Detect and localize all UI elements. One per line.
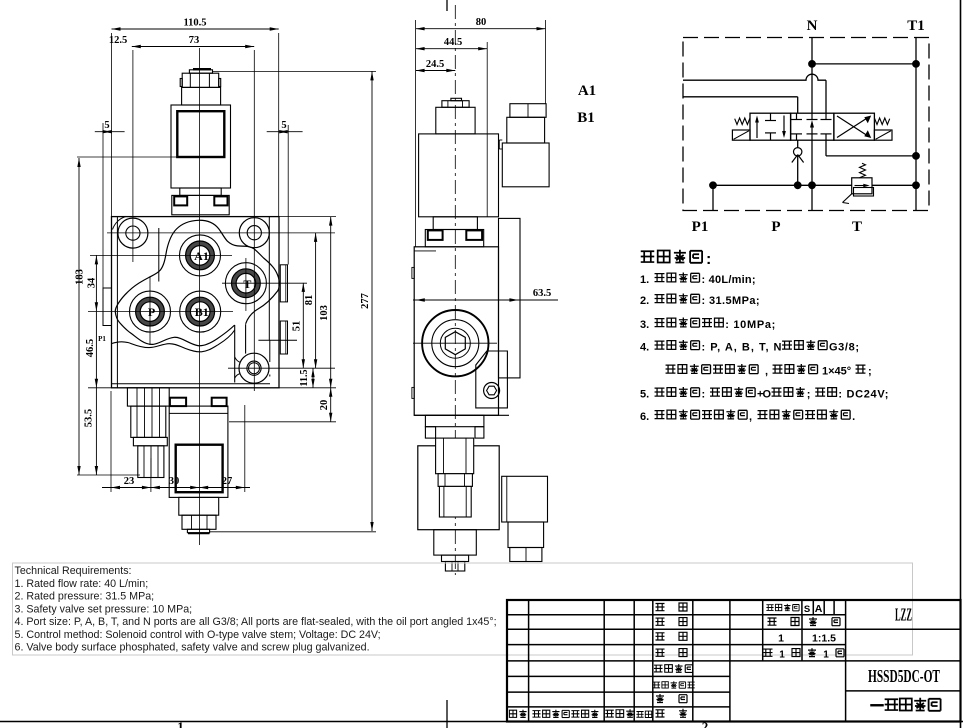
svg-text:N: N (807, 18, 818, 34)
svg-text:P: P (771, 219, 780, 235)
svg-text:5: 5 (104, 120, 109, 131)
svg-text:T: T (243, 277, 251, 291)
svg-text::: : (702, 389, 710, 401)
svg-text:110.5: 110.5 (183, 18, 206, 29)
svg-text:LZZ: LZZ (895, 605, 912, 625)
svg-text:63.5: 63.5 (533, 288, 551, 299)
svg-text:,: , (749, 411, 757, 423)
svg-text:B1: B1 (577, 110, 595, 126)
svg-text:P1: P1 (98, 335, 106, 343)
svg-text:12.5: 12.5 (109, 35, 127, 46)
svg-text:: P, A, B, T, N: : P, A, B, T, N (702, 342, 782, 354)
svg-text:277: 277 (360, 293, 371, 309)
svg-text:: 10MPa;: : 10MPa; (725, 319, 775, 331)
svg-text:30: 30 (169, 476, 180, 487)
svg-text:4. Port size: P, A, B, T, and: 4. Port size: P, A, B, T, and N ports ar… (15, 616, 497, 628)
svg-text:P1: P1 (692, 219, 709, 235)
svg-text:+O: +O (757, 389, 771, 401)
svg-text:Technical Requirements:: Technical Requirements: (15, 565, 132, 577)
svg-text:1: 1 (778, 632, 784, 644)
svg-text:24.5: 24.5 (426, 59, 444, 70)
svg-text:2. Rated pressure: 31.5 MPa;: 2. Rated pressure: 31.5 MPa; (15, 591, 155, 603)
svg-text:: 31.5MPa;: : 31.5MPa; (702, 295, 760, 307)
svg-text:T: T (852, 219, 862, 235)
svg-text::: : (706, 251, 711, 268)
svg-text:183: 183 (75, 269, 86, 285)
svg-text:T1: T1 (907, 18, 925, 34)
svg-text:53.5: 53.5 (84, 409, 95, 427)
svg-text:5. Control method: Solenoid co: 5. Control method: Solenoid control with… (15, 629, 381, 641)
svg-text:23: 23 (124, 476, 135, 487)
svg-text:103: 103 (319, 305, 330, 321)
svg-text:73: 73 (189, 35, 200, 46)
svg-text:1: 1 (177, 719, 184, 728)
svg-text:20: 20 (319, 400, 330, 411)
svg-text:2: 2 (702, 719, 709, 728)
svg-text:11.5: 11.5 (299, 370, 310, 387)
svg-text:P: P (148, 305, 155, 319)
svg-text:1×45°: 1×45° (822, 366, 851, 378)
svg-text:81: 81 (304, 295, 315, 306)
svg-text:34: 34 (87, 277, 98, 288)
svg-text:46.5: 46.5 (85, 339, 96, 357)
svg-text:6. Valve body surface phosphat: 6. Valve body surface phosphated, safety… (15, 642, 370, 654)
svg-text:1. Rated flow rate: 40 L/min;: 1. Rated flow rate: 40 L/min; (15, 578, 149, 590)
svg-text:5: 5 (281, 120, 286, 131)
svg-text:G3/8;: G3/8; (829, 342, 859, 354)
svg-text:44.5: 44.5 (444, 37, 462, 48)
svg-text:1:1.5: 1:1.5 (812, 632, 836, 644)
svg-text:;: ; (807, 389, 815, 401)
svg-text:A: A (815, 603, 823, 615)
svg-text:: 40L/min;: : 40L/min; (702, 274, 756, 286)
svg-text:: DC24V;: : DC24V; (838, 389, 888, 401)
svg-text:HSSD5DC-OT: HSSD5DC-OT (868, 666, 940, 686)
svg-text:80: 80 (476, 17, 487, 28)
svg-text:3.: 3. (640, 319, 649, 331)
svg-text:S: S (804, 604, 810, 615)
svg-text:A1: A1 (578, 83, 596, 99)
svg-text:;: ; (868, 366, 872, 378)
svg-text:4.: 4. (640, 342, 649, 354)
svg-text:.: . (852, 411, 855, 423)
svg-text:27: 27 (222, 476, 233, 487)
svg-text:1: 1 (779, 650, 785, 661)
svg-text:,: , (765, 366, 768, 378)
svg-text:6.: 6. (640, 411, 649, 423)
svg-text:2.: 2. (640, 295, 649, 307)
svg-text:1.: 1. (640, 274, 649, 286)
svg-text:5.: 5. (640, 389, 649, 401)
svg-text:1: 1 (823, 650, 829, 661)
svg-text:51: 51 (292, 321, 303, 332)
svg-text:3. Safety valve set pressure:: 3. Safety valve set pressure: 10 MPa; (15, 603, 193, 615)
svg-text:A1: A1 (194, 249, 209, 263)
svg-text:B1: B1 (195, 305, 209, 319)
